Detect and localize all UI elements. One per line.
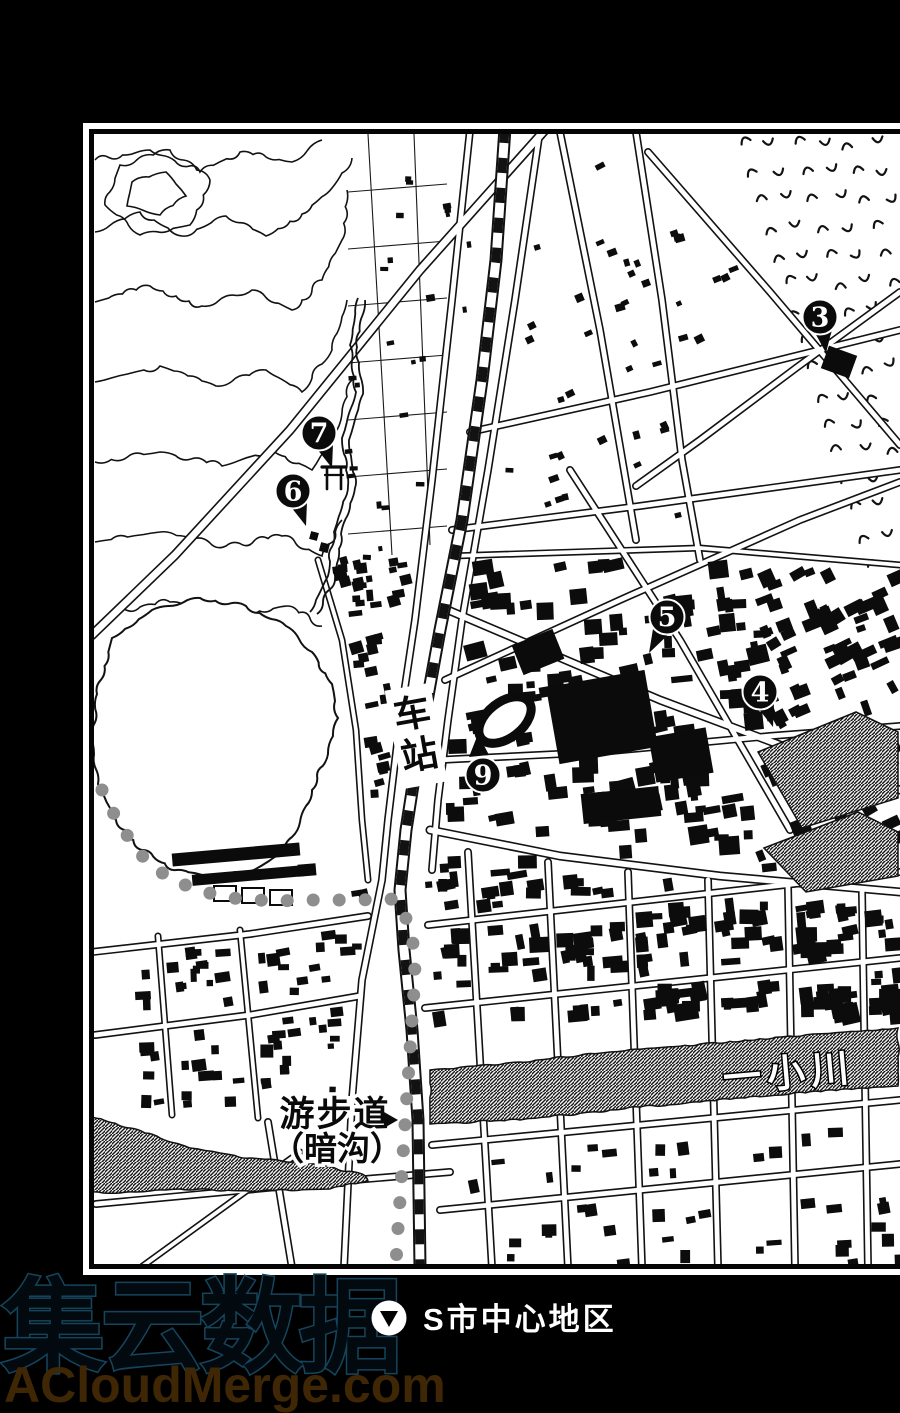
map-marker-number: 9	[474, 761, 493, 792]
station-label-char2: 站	[398, 732, 442, 779]
watermark: 集云数据 ACloudMerge.com	[1, 1270, 446, 1413]
map-marker-number: 6	[284, 477, 303, 508]
map-marker-number: 3	[811, 303, 830, 334]
city-map: 车 站 游步道 （暗沟） 一小川 345679 集云数据 ACloudMerge…	[0, 0, 900, 1413]
manga-map-page: 车 站 游步道 （暗沟） 一小川 345679 集云数据 ACloudMerge…	[0, 0, 900, 1413]
promenade-label-group: 游步道 （暗沟）	[271, 1095, 403, 1167]
map-marker-number: 5	[658, 603, 677, 634]
caption-group: S市中心地区	[372, 1301, 617, 1338]
caption-title: S市中心地区	[423, 1302, 617, 1337]
map-marker-number: 4	[751, 678, 770, 709]
station-label-char1: 车	[390, 690, 434, 737]
map-marker-number: 7	[310, 419, 329, 450]
promenade-label-line1: 游步道	[279, 1095, 390, 1134]
watermark-line2: ACloudMerge.com	[4, 1357, 446, 1413]
promenade-label-line2: （暗沟）	[271, 1130, 403, 1167]
